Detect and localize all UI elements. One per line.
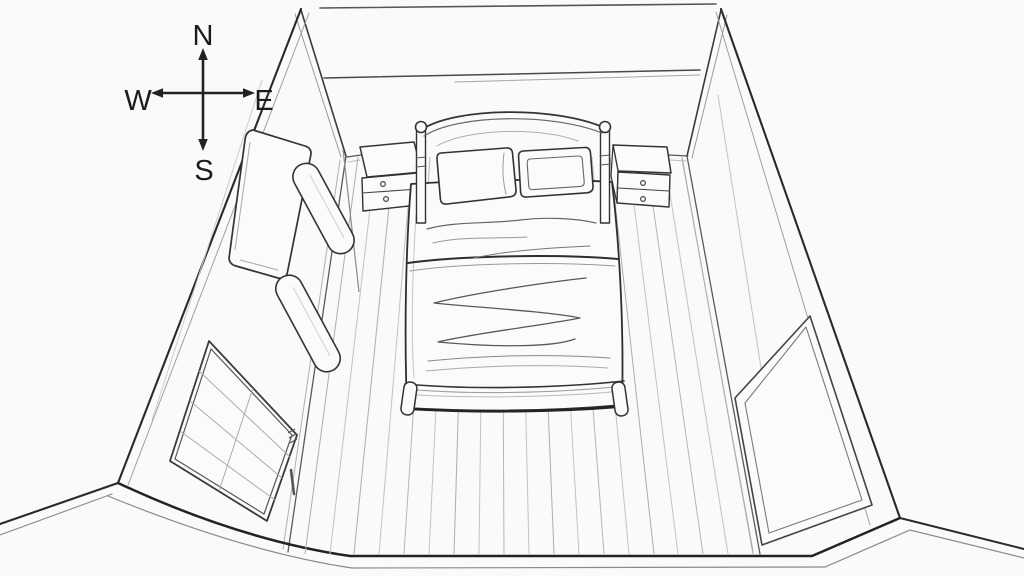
pillow-right xyxy=(519,147,593,197)
nightstand-top xyxy=(360,142,422,177)
compass-label-south: S xyxy=(194,155,213,187)
back-wall-base-right-echo xyxy=(670,160,686,161)
wall-corner-left xyxy=(301,10,346,156)
drawer-knob xyxy=(641,197,646,202)
mattress-body xyxy=(406,180,623,411)
nightstand-right xyxy=(611,145,671,207)
headboard-arc-outer xyxy=(421,112,605,130)
bed-foot-post-right xyxy=(611,381,629,416)
headboard-finial-right xyxy=(600,122,611,133)
south-west-extension xyxy=(0,483,118,524)
back-wall-base-right xyxy=(669,155,688,156)
compass-label-west: W xyxy=(124,85,152,117)
headboard-post-left xyxy=(417,131,426,223)
headboard-finial-left xyxy=(416,122,427,133)
wall-corner-right-echo xyxy=(692,15,727,158)
door xyxy=(735,316,872,545)
bedroom-sketch-canvas: N S W E xyxy=(0,0,1024,576)
east-arrow-icon xyxy=(243,88,255,98)
compass-cross xyxy=(159,56,247,143)
pillow-left xyxy=(437,148,516,204)
headboard-arc-faint xyxy=(437,131,578,146)
west-arrow-icon xyxy=(151,88,163,98)
drawer-knob xyxy=(381,182,386,187)
window-outer-frame xyxy=(170,341,297,521)
door-outer-frame xyxy=(735,316,872,545)
east-floor-junction xyxy=(687,156,760,554)
compass-label-east: E xyxy=(254,85,273,117)
bedroom-illustration: N S W E xyxy=(0,0,1024,576)
headboard-post-right xyxy=(601,131,610,223)
wall-corner-left-echo xyxy=(295,14,341,157)
back-wall-rail-echo xyxy=(455,75,700,82)
compass-label-north: N xyxy=(193,20,214,52)
south-east-extension xyxy=(900,518,1024,549)
south-arrow-icon xyxy=(198,139,208,151)
wardrobe xyxy=(229,130,359,377)
back-wall-base-left xyxy=(347,155,361,157)
drawer-knob xyxy=(641,181,646,186)
wall-corner-right xyxy=(687,10,721,156)
nightstand-top xyxy=(613,145,671,173)
window xyxy=(170,341,297,521)
wardrobe-bar-lower xyxy=(271,270,345,376)
bed xyxy=(400,112,629,417)
bed-foot-post-left xyxy=(400,381,417,415)
back-wall-base-left-echo xyxy=(348,160,360,162)
south-west-extension-echo xyxy=(0,494,112,535)
back-wall-top-edge xyxy=(320,4,716,8)
drawer-knob xyxy=(384,197,389,202)
headboard-arc-inner xyxy=(424,119,602,136)
